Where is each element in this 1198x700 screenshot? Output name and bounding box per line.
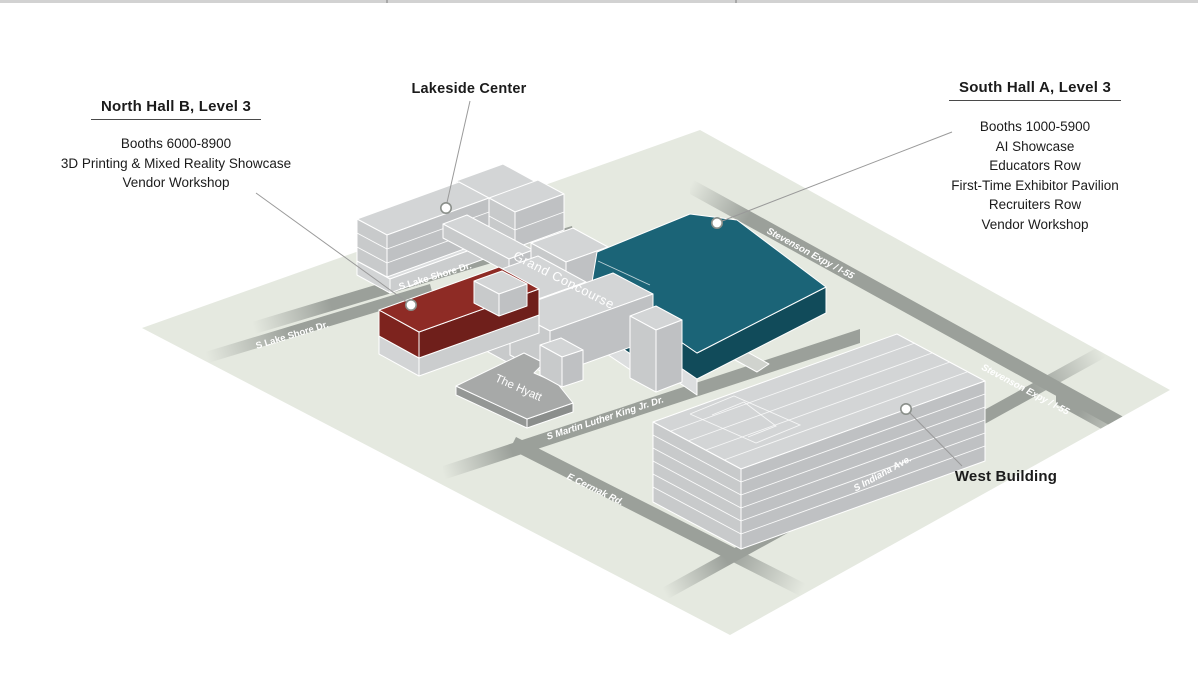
south-hall-detail: Educators Row — [900, 156, 1170, 176]
north-hall-detail: Vendor Workshop — [30, 173, 322, 193]
north-hall-title-text: North Hall B, Level 3 — [91, 98, 261, 120]
south-hall-detail: Vendor Workshop — [900, 215, 1170, 235]
callout-south-hall: South Hall A, Level 3 Booths 1000-5900 A… — [900, 79, 1170, 234]
north-hall-detail: 3D Printing & Mixed Reality Showcase — [30, 154, 322, 174]
marker-north-hall-b — [406, 300, 416, 310]
marker-south-hall-a — [712, 218, 722, 228]
south-hall-title: South Hall A, Level 3 — [900, 79, 1170, 101]
south-hall-title-text: South Hall A, Level 3 — [949, 79, 1121, 101]
south-hall-detail: Recruiters Row — [900, 195, 1170, 215]
north-hall-detail: Booths 6000-8900 — [30, 134, 322, 154]
north-hall-title: North Hall B, Level 3 — [30, 98, 322, 120]
south-hall-detail: First-Time Exhibitor Pavilion — [900, 176, 1170, 196]
west-building-title: West Building — [925, 468, 1087, 485]
callout-west-building: West Building — [925, 468, 1087, 485]
south-hall-detail: AI Showcase — [900, 137, 1170, 157]
south-hall-detail: Booths 1000-5900 — [900, 117, 1170, 137]
callout-north-hall: North Hall B, Level 3 Booths 6000-8900 3… — [30, 98, 322, 193]
lakeside-title: Lakeside Center — [390, 81, 548, 97]
campus-map-page: S Lake Shore Dr. S Lake Shore Dr. Grand … — [0, 0, 1198, 700]
marker-west-building — [901, 404, 911, 414]
callout-lakeside: Lakeside Center — [390, 81, 548, 97]
marker-lakeside-center — [441, 203, 451, 213]
